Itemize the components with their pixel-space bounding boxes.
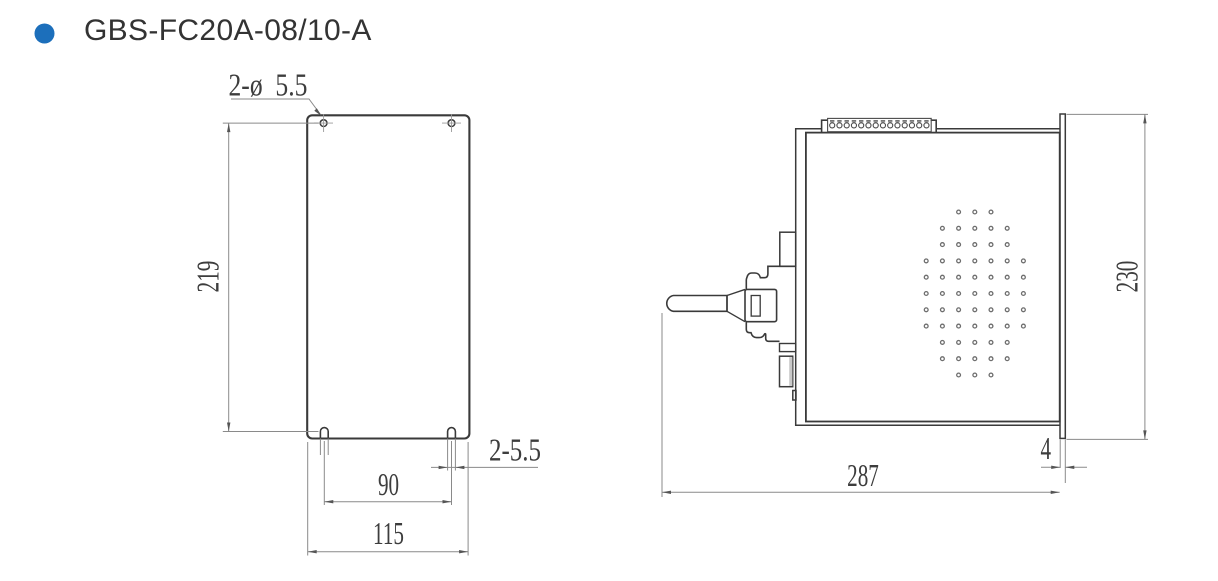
svg-text:GBS-FC20A-08/10-A: GBS-FC20A-08/10-A <box>84 14 372 47</box>
svg-text:219: 219 <box>190 261 225 293</box>
svg-text:2-5.5: 2-5.5 <box>489 433 541 469</box>
svg-text:115: 115 <box>373 516 404 551</box>
svg-text:287: 287 <box>847 458 879 493</box>
svg-text:2-ø 5.5: 2-ø 5.5 <box>229 68 308 103</box>
svg-text:230: 230 <box>1109 261 1144 293</box>
svg-text:90: 90 <box>378 467 399 502</box>
svg-text:4: 4 <box>1041 431 1052 466</box>
